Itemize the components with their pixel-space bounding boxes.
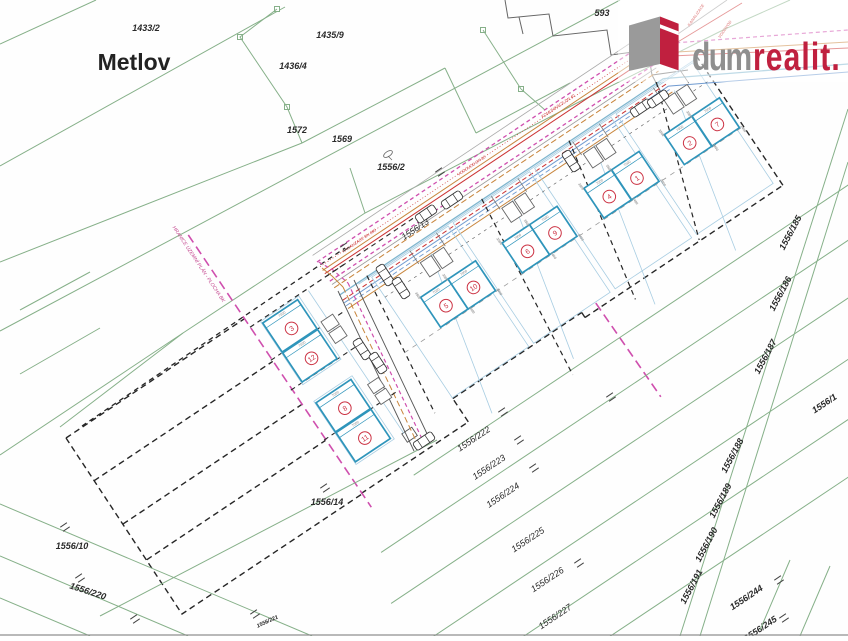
svg-text:1556/14: 1556/14 [311, 497, 344, 507]
svg-text:1556/2: 1556/2 [377, 162, 405, 172]
svg-text:593: 593 [594, 8, 609, 18]
svg-text:1572: 1572 [287, 125, 307, 135]
svg-text:1569: 1569 [332, 134, 352, 144]
svg-text:Metlov: Metlov [98, 49, 171, 75]
svg-text:dumrealit.: dumrealit. [692, 37, 841, 79]
svg-text:1435/9: 1435/9 [316, 30, 344, 40]
svg-text:1556/10: 1556/10 [56, 541, 89, 551]
svg-text:1436/4: 1436/4 [279, 61, 307, 71]
svg-text:1433/2: 1433/2 [132, 23, 160, 33]
